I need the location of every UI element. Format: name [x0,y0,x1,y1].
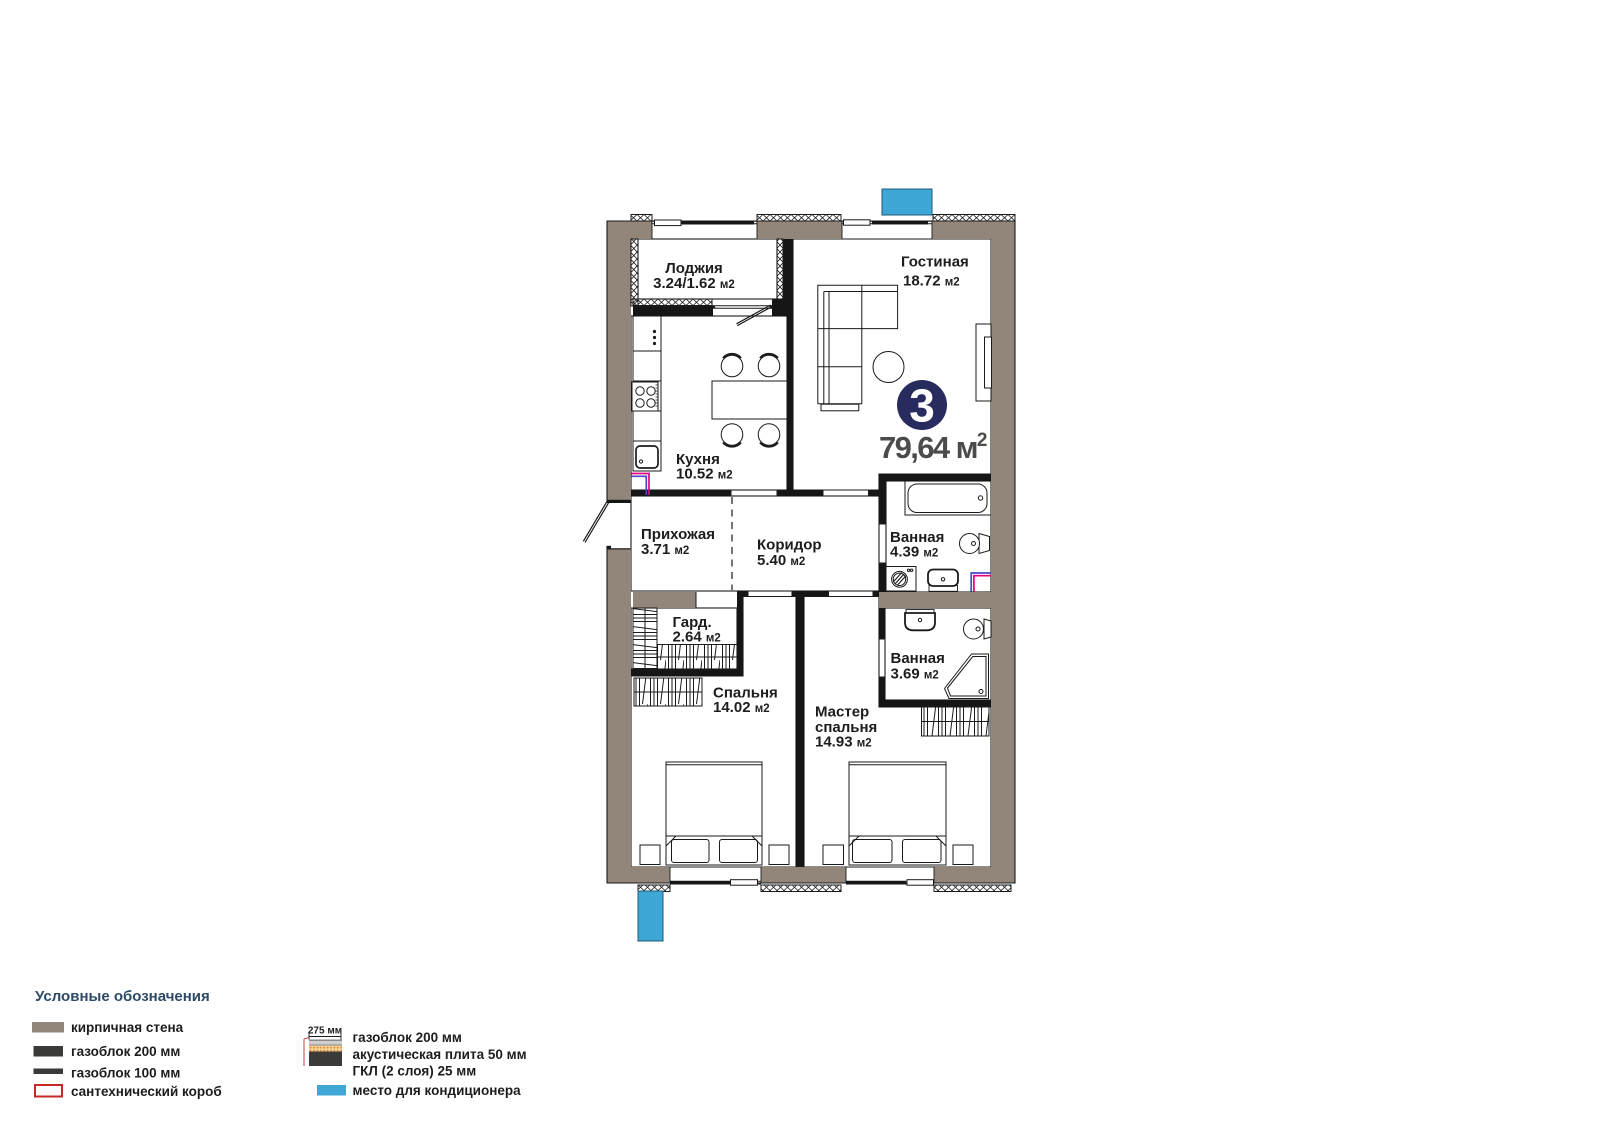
svg-text:газоблок 200 мм: газоблок 200 мм [71,1044,180,1059]
svg-text:газоблок 200 мм: газоблок 200 мм [353,1030,462,1045]
svg-text:3: 3 [909,380,935,432]
svg-text:Гостиная: Гостиная [901,254,969,271]
svg-text:место для кондиционера: место для кондиционера [353,1083,522,1098]
svg-text:275 мм: 275 мм [308,1026,342,1037]
svg-text:сантехнический короб: сантехнический короб [71,1084,222,1099]
svg-text:ГКЛ (2 слоя) 25 мм: ГКЛ (2 слоя) 25 мм [353,1064,477,1079]
svg-text:акустическая плита 50 мм: акустическая плита 50 мм [353,1047,527,1062]
svg-text:газоблок 100 мм: газоблок 100 мм [71,1066,180,1081]
svg-text:Коридор: Коридор [757,537,822,554]
svg-text:Мастер: Мастер [815,704,869,721]
svg-text:79,64 м2: 79,64 м2 [879,430,987,465]
svg-text:кирпичная стена: кирпичная стена [71,1020,184,1035]
svg-text:Ванная: Ванная [891,650,945,667]
svg-text:Условные обозначения: Условные обозначения [35,988,210,1005]
